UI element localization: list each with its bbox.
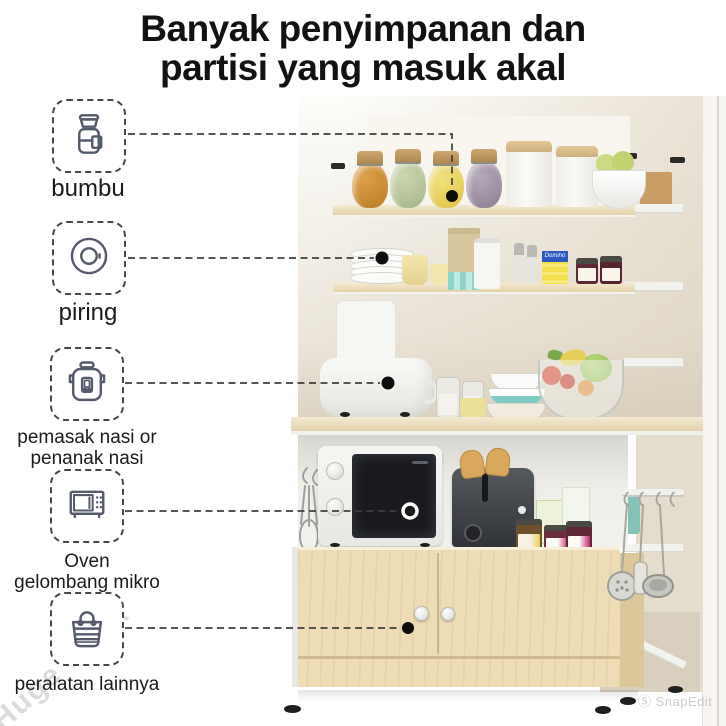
hanging-utensils [598,492,698,618]
watermark-snapedit: Ⓢ SnapEdit [638,691,712,710]
microwave-door [352,454,436,538]
label-line-2: penanak nasi [0,448,197,469]
jar-lid [600,256,622,262]
jar-lid [516,519,542,525]
spice-jar-mauve [466,161,502,208]
jar-lid [357,151,383,166]
callout-label-piring: piring [0,300,198,326]
spice-jar-icon [63,108,115,165]
cabinet [298,547,620,687]
storage-canister [506,141,552,207]
jar-label [602,268,620,281]
jar-lid [433,151,459,166]
spice-jar-green [390,161,426,208]
toaster-slot [482,474,488,502]
page-title: Banyak penyimpanan dan partisi yang masu… [0,9,726,87]
rice-cooker-icon [61,356,113,413]
rack-leg [287,686,299,706]
microwave-logo [412,461,428,464]
canister-lid [556,146,598,157]
jar-lid [395,149,421,164]
jam-jar [576,258,598,284]
label-line-1: Oven [0,551,197,572]
callout-box-piring [52,221,126,295]
callout-box-bumbu [52,99,126,173]
label-line-2: gelombang mikro [0,572,197,593]
yellow-cup [402,255,428,285]
callout-label-bumbu: bumbu [0,176,198,202]
yellow-tumbler [460,398,486,419]
spice-jar-yellow [428,163,464,208]
sugar-box-label: Domino [542,251,568,262]
microwave [318,446,442,546]
spice-jar-amber [352,163,388,208]
title-line-1: Banyak penyimpanan dan [0,9,726,48]
fridge-side [702,96,726,726]
callout-label-other-items: peralatan lainnya [0,674,197,695]
pepper-grinder [514,243,524,284]
post-cap [670,157,685,163]
door-knob-left [414,606,429,621]
canister-lid [506,141,552,152]
sugar-box: Domino [542,251,568,284]
basket-glass [538,360,624,420]
vegetable-basket [538,348,624,422]
post-cap [331,163,345,169]
ladder-rung [624,358,683,367]
bread-slice [484,447,511,478]
door-knob-right [441,607,455,621]
rack-foot [284,705,301,713]
product-infographic: Banyak penyimpanan dan partisi yang masu… [0,0,726,726]
plate-icon [63,230,115,287]
toaster-knob [464,524,482,542]
jar-contents [439,394,457,415]
jar-lid [544,525,568,531]
fridge-seam [717,96,719,726]
jar-lid [566,521,592,527]
tote-bag-icon [61,601,113,658]
cabinet-rail [298,656,620,659]
jam-jar [600,256,622,284]
jar-lid [471,149,497,164]
microwave-icon [61,478,113,535]
title-line-2: partisi yang masuk akal [0,48,726,87]
rack-foot [595,706,611,714]
rack-leg [598,652,609,708]
callout-label-microwave: Oven gelombang mikro [0,551,197,593]
microwave-knob [326,462,344,480]
rice-cooker [320,358,432,418]
callout-box-microwave [50,469,124,543]
jar-label [578,268,596,281]
callout-box-other-items [50,592,124,666]
toaster-button [518,506,526,514]
jar-lid [576,258,598,264]
callout-label-rice-cooker: pemasak nasi or penanak nasi [0,427,197,469]
glass-jar [436,377,460,418]
callout-box-rice-cooker [50,347,124,421]
counter-board [291,417,703,435]
label-line-1: pemasak nasi or [0,427,197,448]
salt-grinder [527,245,537,284]
microwave-knob [326,498,344,516]
door-seam [437,553,439,654]
floor-shadow [298,690,638,702]
white-canister [474,238,500,289]
yellow-cup-small [430,264,448,284]
rack-foot [620,697,636,705]
